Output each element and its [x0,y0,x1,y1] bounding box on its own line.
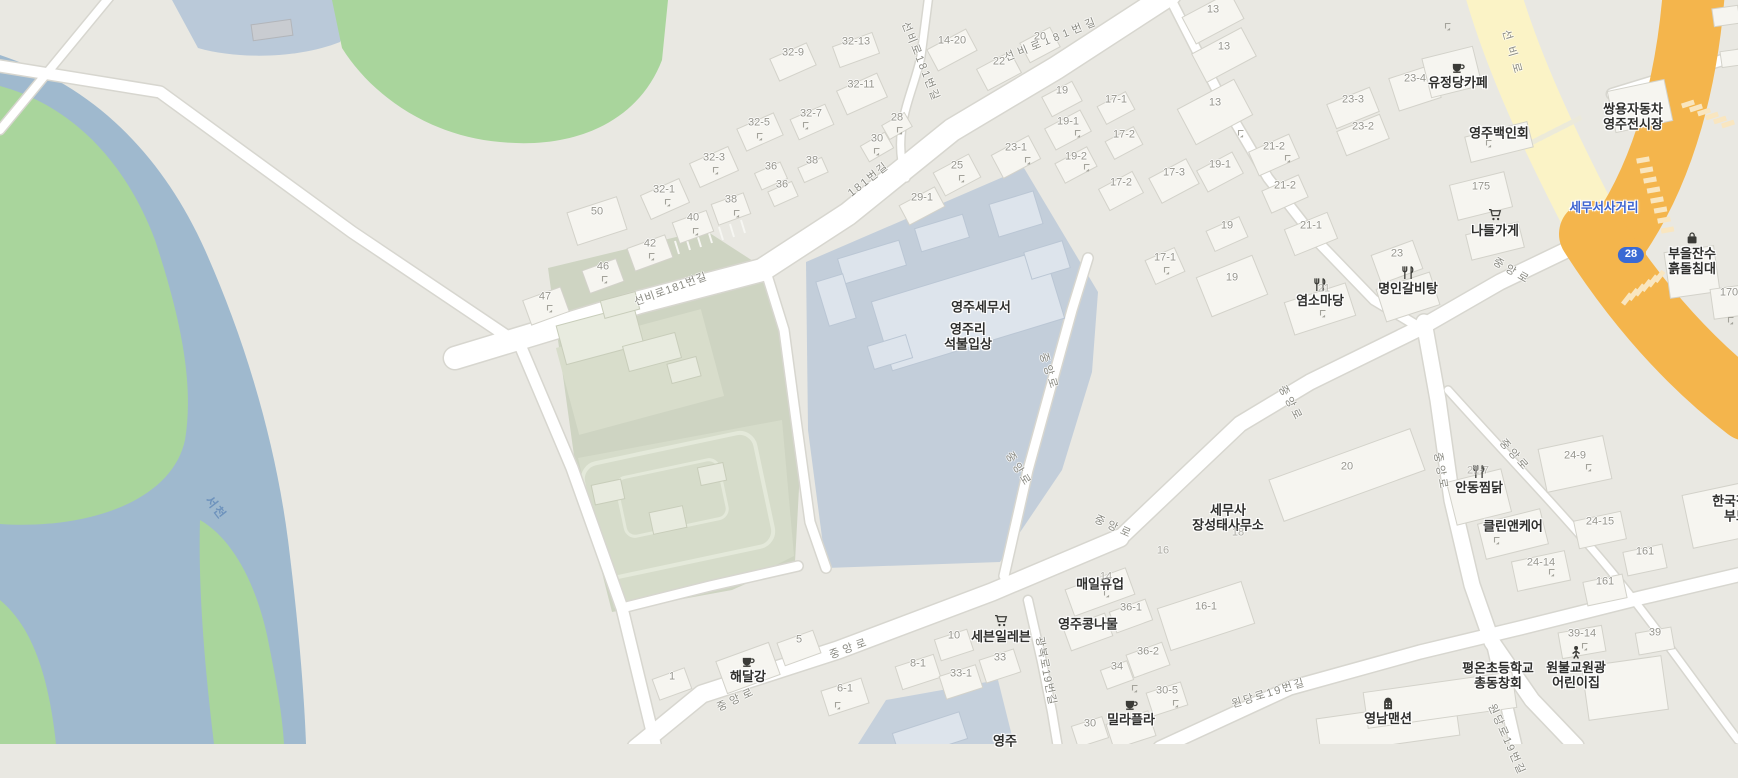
address-number: 175 [1472,181,1490,194]
address-number: 21-1 [1300,220,1322,233]
address-number: 19-1 [1057,116,1079,129]
address-number: 28 [891,112,903,125]
address-number: 19-2 [1065,151,1087,164]
poi-label[interactable]: 밀라플라 [1107,697,1155,727]
poi-label[interactable]: 부을잔수흙돌침대 [1668,231,1716,277]
poi-label[interactable]: 원불교원광어린이집 [1546,645,1606,691]
address-number: 32-1 [653,184,675,197]
address-number: 32-7 [800,108,822,121]
cafe-icon [1451,60,1465,74]
poi-label[interactable]: 영주콩나물 [1058,616,1118,631]
address-number: 39 [1649,627,1661,640]
address-number: 34 [1111,661,1123,674]
address-number: 5 [796,634,802,647]
address-number: 30 [871,133,883,146]
cart-icon [994,614,1008,628]
address-number: 24-15 [1586,516,1614,529]
poi-label[interactable]: 나들가게 [1471,208,1519,238]
address-number: 14-20 [938,35,966,48]
address-number: 33 [994,652,1006,665]
address-number: 19 [1226,272,1238,285]
road-label: 중앙로 [715,685,759,715]
address-number: 47 [539,291,551,304]
address-number: 10 [948,630,960,643]
road-label: 선비로181번길 [633,271,710,310]
road-label: 중앙로 [828,636,872,663]
address-number: 17-1 [1105,94,1127,107]
address-number: 32-3 [703,152,725,165]
address-number: 25 [951,160,963,173]
address-number: 19-1 [1209,159,1231,172]
road-label: 181번길 [846,160,892,200]
child-icon [1569,645,1583,659]
cafe-icon [741,654,755,668]
address-number: 13 [1209,97,1221,110]
intersection-label[interactable]: 세무서사거리 [1569,201,1638,216]
road-label: 중앙로 [1490,256,1533,288]
address-number: 36-2 [1137,646,1159,659]
address-number: 29-1 [911,192,933,205]
address-number: 161 [1636,546,1654,559]
address-number: 17-3 [1163,167,1185,180]
address-number: 38 [725,194,737,207]
address-number: 50 [591,206,603,219]
address-number: 46 [597,261,609,274]
road-label: 중앙로 [1092,513,1136,542]
poi-label[interactable]: 해달강 [730,654,766,684]
address-number: 39-14 [1568,628,1596,641]
address-number: 36 [765,161,777,174]
address-number: 23-1 [1005,142,1027,155]
poi-label[interactable]: 명인갈비탕 [1378,266,1438,296]
address-number: 21-2 [1263,141,1285,154]
address-number: 32-13 [842,36,870,49]
address-number: 24-14 [1527,557,1555,570]
poi-label[interactable]: 클린앤케어 [1483,518,1543,533]
map-canvas[interactable]: 유정당카페영주백인회쌍용자동차영주전시장나들가게부을잔수흙돌침대염소마당명인갈비… [0,0,1738,744]
address-number: 23 [1391,248,1403,261]
poi-label[interactable]: 영주 [993,733,1017,748]
poi-label[interactable]: 영주백인회 [1469,125,1529,140]
address-number: 30 [1084,718,1096,731]
restaurant-icon [1401,266,1415,280]
address-number: 16 [1157,545,1169,558]
address-number: 20 [1341,461,1353,474]
address-number: 161 [1596,576,1614,589]
address-number: 17-1 [1154,252,1176,265]
address-number: 42 [644,238,656,251]
address-number: 17-2 [1110,177,1132,190]
map-labels-layer: 유정당카페영주백인회쌍용자동차영주전시장나들가게부을잔수흙돌침대염소마당명인갈비… [0,0,1738,744]
address-number: 1 [669,671,675,684]
address-number: 22 [993,56,1005,69]
address-number: 32-5 [748,117,770,130]
address-number: 170 [1720,287,1738,300]
road-label: 중앙로 [1036,351,1061,392]
address-number: 24-9 [1564,450,1586,463]
address-number: 8-1 [910,658,926,671]
address-number: 14 [1100,571,1112,584]
address-number: 17-2 [1113,129,1135,142]
address-number: 33-1 [950,668,972,681]
address-number: 40 [687,212,699,225]
road-label: 선비로 [1499,29,1526,82]
poi-label[interactable]: 한국장애인부모회 [1712,494,1738,525]
bag-icon [1685,231,1699,245]
address-number: 38 [806,155,818,168]
cart-icon [1488,208,1502,222]
address-number: 36-1 [1120,602,1142,615]
address-number: 20 [1034,31,1046,44]
address-number: 13 [1218,41,1230,54]
road-label: 원당로19번길 [1484,702,1527,777]
address-number: 18 [1232,527,1244,540]
poi-label[interactable]: 세무사장성태사무소 [1192,503,1264,534]
poi-label[interactable]: 세븐일레븐 [971,614,1031,644]
river-label: 서천 [202,493,229,522]
address-number: 21-7 [1467,465,1489,478]
road-label: 광복로19번길 [1032,635,1058,706]
address-number: 19 [1221,220,1233,233]
poi-label[interactable]: 쌍용자동차영주전시장 [1603,102,1663,133]
road-label: 중앙로 [1430,451,1450,492]
road-label: 중앙로 [1002,450,1034,490]
poi-label[interactable]: 영주세무서 [951,299,1011,314]
route-badge: 28 [1618,247,1644,263]
poi-label[interactable]: 평온초등학교총동창회 [1462,661,1534,692]
address-number: 6-1 [837,683,853,696]
address-number: 32-9 [782,47,804,60]
poi-label[interactable]: 영주리석불입상 [944,322,992,353]
address-number: 23-4 [1404,73,1426,86]
poi-label[interactable]: 영남맨션 [1364,696,1412,726]
address-number: 21 [1318,283,1330,296]
address-number: 30-5 [1156,685,1178,698]
address-number: 19 [1056,85,1068,98]
road-label: 원당로19번길 [1230,677,1307,712]
address-number: 23-3 [1342,94,1364,107]
building-icon [1381,696,1395,710]
address-number: 16-1 [1195,601,1217,614]
cafe-icon [1124,697,1138,711]
address-number: 36 [776,179,788,192]
address-number: 23-2 [1352,121,1374,134]
poi-label[interactable]: 유정당카페 [1428,60,1488,90]
address-number: 32-11 [847,79,874,92]
road-label: 선비로181번길 [1003,15,1101,65]
road-label: 선비로181번길 [898,20,942,104]
address-number: 13 [1207,4,1219,17]
address-number: 21-2 [1274,180,1296,193]
road-label: 중앙로 [1275,384,1305,425]
